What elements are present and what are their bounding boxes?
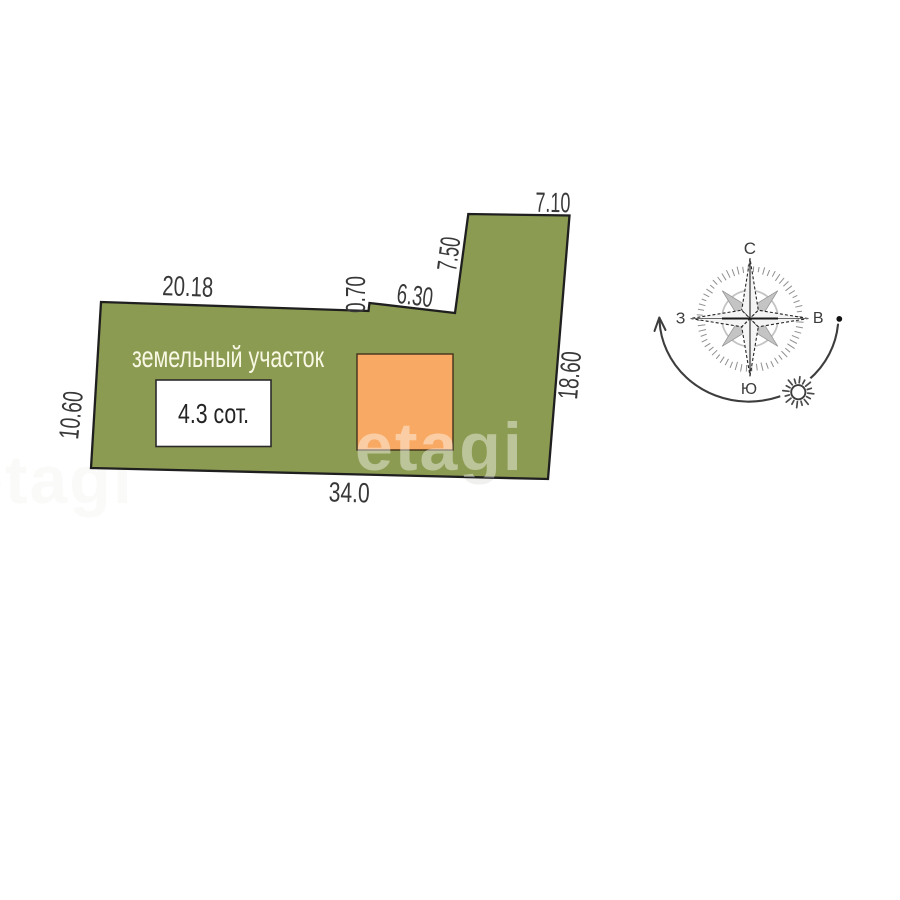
svg-text:18.60: 18.60 [552,350,587,401]
svg-text:0.70: 0.70 [340,276,371,313]
svg-text:34.0: 34.0 [328,476,370,508]
svg-text:etagi: etagi [355,409,524,485]
svg-text:Ю: Ю [741,381,757,398]
svg-text:В: В [813,310,824,327]
svg-text:С: С [744,239,756,258]
svg-text:7.50: 7.50 [431,235,466,273]
svg-text:10.60: 10.60 [53,390,89,441]
svg-text:4.3 сот.: 4.3 сот. [178,398,249,429]
svg-text:З: З [676,311,686,328]
svg-text:7.10: 7.10 [535,187,571,219]
svg-text:6.30: 6.30 [395,278,435,313]
svg-text:20.18: 20.18 [162,270,214,303]
svg-text:земельный участок: земельный участок [132,341,325,374]
